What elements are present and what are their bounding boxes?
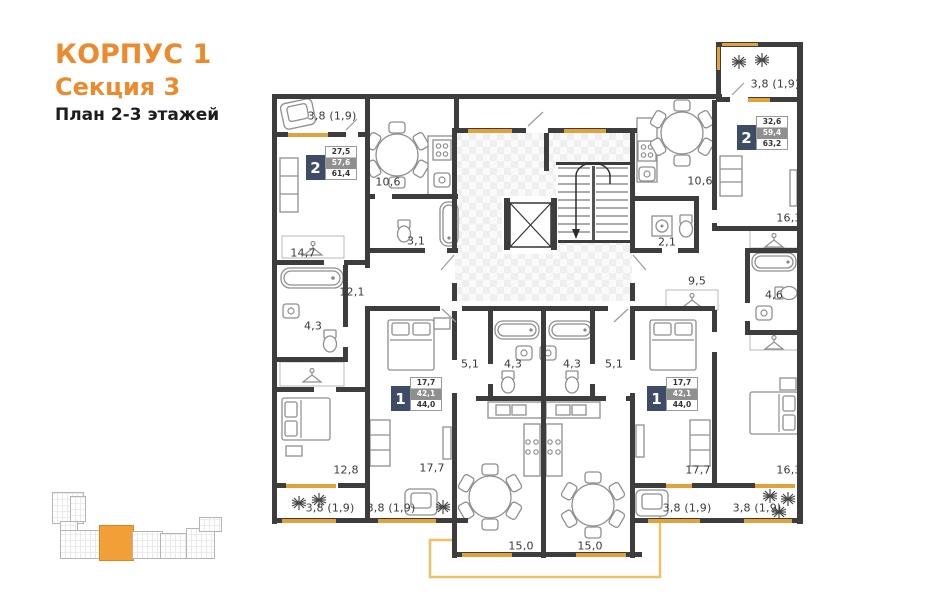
room-area-label: 16,3 bbox=[776, 464, 801, 477]
room-area-label: 15,0 bbox=[508, 540, 533, 553]
room-area-label: 16,3 bbox=[776, 212, 801, 225]
floor-plan-page: КОРПУС 1 Секция 3 План 2-3 этажей bbox=[0, 0, 941, 600]
badge-areas: 17,742,144,0 bbox=[410, 377, 442, 411]
badge-area-row: 63,2 bbox=[757, 139, 787, 149]
room-area-label: 3,8 (1,9) bbox=[663, 502, 712, 515]
room-area-label: 12,8 bbox=[333, 464, 358, 477]
badge-room-count: 2 bbox=[737, 125, 756, 150]
room-area-label: 10,6 bbox=[687, 175, 712, 188]
badge-areas: 32,659,463,2 bbox=[756, 116, 788, 150]
room-area-label: 10,6 bbox=[375, 176, 400, 189]
room-area-label: 12,1 bbox=[339, 286, 364, 299]
title-block: КОРПУС 1 Секция 3 План 2-3 этажей bbox=[55, 38, 219, 128]
badge-area-row: 42,1 bbox=[411, 389, 441, 400]
badge-areas: 27,557,661,4 bbox=[325, 146, 357, 180]
room-area-label: 15,0 bbox=[577, 540, 602, 553]
building-title: КОРПУС 1 bbox=[55, 38, 219, 72]
room-area-label: 5,1 bbox=[461, 358, 479, 371]
badge-area-row: 27,5 bbox=[326, 147, 356, 158]
room-area-label: 3,8 (1,9) bbox=[733, 502, 782, 515]
section-title: Секция 3 bbox=[55, 72, 219, 103]
apartment-info-badge: 227,557,661,4 bbox=[306, 146, 357, 180]
room-area-label: 3,8 (1,9) bbox=[306, 502, 355, 515]
room-area-label: 4,6 bbox=[765, 289, 783, 302]
room-area-label: 4,3 bbox=[504, 358, 522, 371]
badge-room-count: 2 bbox=[306, 155, 325, 180]
room-area-label: 3,1 bbox=[407, 235, 425, 248]
room-area-label: 3,8 (1,9) bbox=[367, 502, 416, 515]
badge-area-row: 32,6 bbox=[757, 117, 787, 128]
badge-area-row: 17,7 bbox=[411, 378, 441, 389]
room-area-label: 5,1 bbox=[605, 358, 623, 371]
room-area-label: 17,7 bbox=[419, 462, 444, 475]
apartment-info-badge: 117,742,144,0 bbox=[391, 377, 442, 411]
apartment-info-badge: 117,742,144,0 bbox=[647, 377, 698, 411]
room-area-label: 9,5 bbox=[688, 275, 706, 288]
badge-area-row: 44,0 bbox=[411, 400, 441, 410]
plan-subtitle: План 2-3 этажей bbox=[55, 103, 219, 129]
badge-areas: 17,742,144,0 bbox=[666, 377, 698, 411]
badge-area-row: 44,0 bbox=[667, 400, 697, 410]
apartment-info-badge: 232,659,463,2 bbox=[737, 116, 788, 150]
badge-room-count: 1 bbox=[391, 386, 410, 411]
room-area-label: 4,3 bbox=[563, 358, 581, 371]
badge-room-count: 1 bbox=[647, 386, 666, 411]
badge-area-row: 57,6 bbox=[326, 158, 356, 169]
room-area-label: 4,3 bbox=[304, 320, 322, 333]
badge-area-row: 61,4 bbox=[326, 169, 356, 179]
room-area-label: 2,1 bbox=[658, 236, 676, 249]
badge-area-row: 17,7 bbox=[667, 378, 697, 389]
room-area-label: 17,7 bbox=[685, 464, 710, 477]
badge-area-row: 59,4 bbox=[757, 128, 787, 139]
badge-area-row: 42,1 bbox=[667, 389, 697, 400]
room-area-label: 3,8 (1,9) bbox=[751, 78, 800, 91]
room-area-label: 3,8 (1,9) bbox=[308, 110, 357, 123]
room-area-label: 14,7 bbox=[290, 247, 315, 260]
